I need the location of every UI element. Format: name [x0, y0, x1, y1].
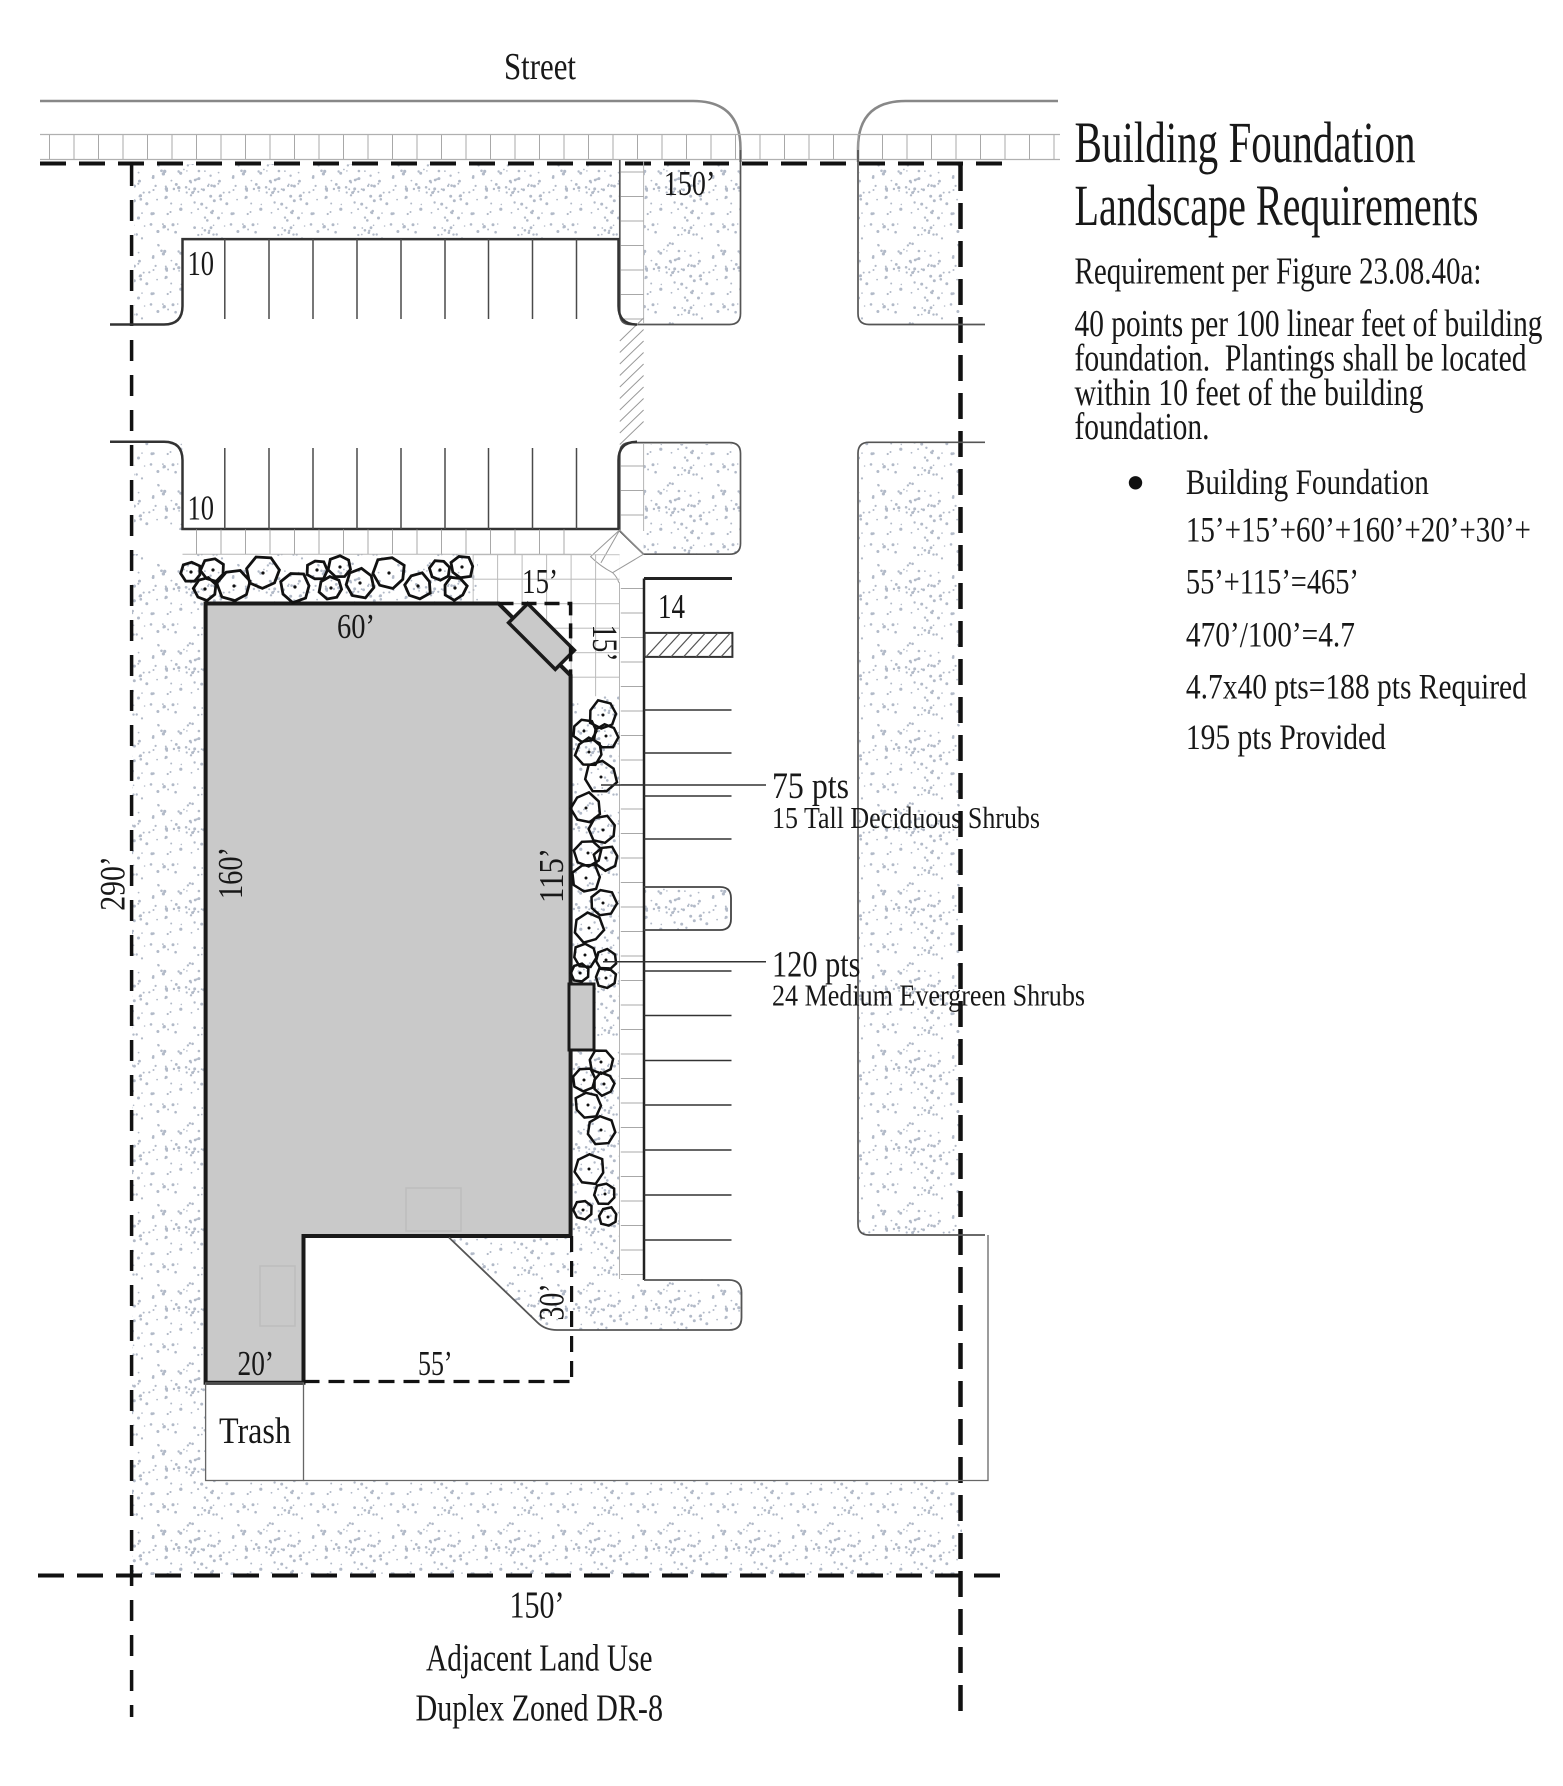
svg-text:150’: 150’: [510, 1585, 565, 1627]
svg-text:150’: 150’: [664, 164, 716, 203]
svg-text:10: 10: [188, 244, 215, 283]
svg-text:55’: 55’: [418, 1344, 453, 1383]
svg-text:Landscape Requirements: Landscape Requirements: [1075, 173, 1479, 238]
svg-text:Requirement per Figure 23.08.4: Requirement per Figure 23.08.40a:: [1075, 250, 1482, 292]
svg-text:15 Tall Deciduous Shrubs: 15 Tall Deciduous Shrubs: [772, 800, 1040, 835]
svg-text:195 pts Provided: 195 pts Provided: [1186, 717, 1386, 757]
svg-text:foundation.: foundation.: [1075, 406, 1210, 448]
svg-text:4.7x40 pts=188 pts Required: 4.7x40 pts=188 pts Required: [1186, 667, 1527, 707]
svg-text:15’: 15’: [585, 625, 625, 662]
svg-text:160’: 160’: [211, 847, 250, 899]
svg-text:Duplex Zoned DR-8: Duplex Zoned DR-8: [416, 1688, 664, 1730]
svg-text:30’: 30’: [532, 1284, 572, 1321]
svg-text:290’: 290’: [93, 856, 133, 911]
svg-text:55’+115’=465’: 55’+115’=465’: [1186, 561, 1359, 601]
svg-text:60’: 60’: [337, 607, 375, 646]
svg-text:Building Foundation: Building Foundation: [1186, 462, 1429, 502]
svg-text:Street: Street: [504, 46, 576, 88]
svg-text:Adjacent Land Use: Adjacent Land Use: [426, 1638, 653, 1680]
svg-text:Building Foundation: Building Foundation: [1075, 110, 1416, 175]
svg-text:24 Medium Evergreen Shrubs: 24 Medium Evergreen Shrubs: [772, 977, 1085, 1012]
svg-text:470’/100’=4.7: 470’/100’=4.7: [1186, 615, 1355, 655]
svg-text:15’: 15’: [522, 562, 558, 601]
svg-text:14: 14: [658, 587, 685, 626]
svg-text:10: 10: [188, 489, 215, 528]
svg-text:115’: 115’: [532, 848, 571, 903]
svg-text:15’+15’+60’+160’+20’+30’+: 15’+15’+60’+160’+20’+30’+: [1186, 510, 1531, 550]
svg-text:20’: 20’: [238, 1344, 275, 1383]
svg-text:Trash: Trash: [219, 1411, 291, 1452]
